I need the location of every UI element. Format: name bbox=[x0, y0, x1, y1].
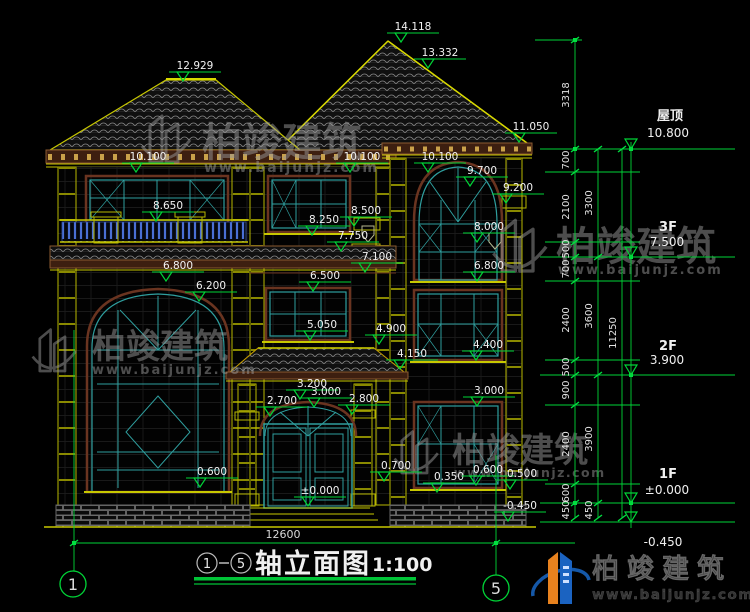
svg-text:1F: 1F bbox=[659, 467, 677, 482]
logo-url-text: www.baijunjz.com bbox=[592, 587, 750, 603]
svg-text:6.800: 6.800 bbox=[163, 260, 193, 272]
svg-text:4.150: 4.150 bbox=[397, 348, 427, 360]
svg-text:14.118: 14.118 bbox=[395, 21, 432, 33]
svg-text:3F: 3F bbox=[659, 220, 677, 235]
svg-text:4.400: 4.400 bbox=[473, 339, 503, 351]
svg-text:6.500: 6.500 bbox=[310, 270, 340, 282]
svg-text:0.600: 0.600 bbox=[197, 466, 227, 478]
svg-text:0.500: 0.500 bbox=[507, 468, 537, 480]
svg-text:450: 450 bbox=[584, 500, 595, 519]
svg-text:3.900: 3.900 bbox=[650, 353, 684, 367]
svg-text:11.050: 11.050 bbox=[513, 121, 550, 133]
svg-text:5.050: 5.050 bbox=[307, 319, 337, 331]
svg-text:www.baijunjz.com: www.baijunjz.com bbox=[92, 363, 257, 378]
svg-text:5: 5 bbox=[491, 579, 501, 598]
svg-text:12.929: 12.929 bbox=[177, 60, 214, 72]
axis-bubble-5: 5 bbox=[483, 575, 509, 601]
svg-text:8.000: 8.000 bbox=[474, 221, 504, 233]
level-roof: 屋顶 10.800 bbox=[625, 109, 689, 149]
svg-text:2F: 2F bbox=[659, 339, 677, 354]
width-dimension: 12600 bbox=[266, 528, 301, 541]
svg-text:600: 600 bbox=[561, 483, 572, 502]
svg-text:8.250: 8.250 bbox=[309, 214, 339, 226]
svg-text:6.800: 6.800 bbox=[474, 260, 504, 272]
svg-text:10.100: 10.100 bbox=[130, 151, 167, 163]
svg-text:屋顶: 屋顶 bbox=[657, 109, 683, 124]
svg-text:11250: 11250 bbox=[608, 317, 619, 349]
logo-brand-text: 柏竣建筑 bbox=[592, 553, 732, 585]
svg-text:900: 900 bbox=[561, 380, 572, 399]
svg-text:2.700: 2.700 bbox=[267, 395, 297, 407]
svg-text:4.900: 4.900 bbox=[376, 323, 406, 335]
axis-bubble-1: 1 bbox=[60, 571, 86, 597]
svg-text:9.700: 9.700 bbox=[467, 165, 497, 177]
svg-text:10.100: 10.100 bbox=[422, 151, 459, 163]
svg-text:www.baijunjz.com: www.baijunjz.com bbox=[558, 263, 723, 278]
logo-building-orange-icon bbox=[548, 552, 558, 604]
svg-text:6.200: 6.200 bbox=[196, 280, 226, 292]
svg-text:7.100: 7.100 bbox=[362, 251, 392, 263]
svg-text:2.800: 2.800 bbox=[349, 393, 379, 405]
svg-text:13.332: 13.332 bbox=[422, 47, 459, 59]
svg-text:7.500: 7.500 bbox=[650, 235, 684, 249]
brand-logo: 柏竣建筑 www.baijunjz.com bbox=[533, 552, 750, 604]
svg-text:柏竣建筑: 柏竣建筑 bbox=[92, 327, 228, 367]
svg-text:±0.000: ±0.000 bbox=[301, 485, 340, 497]
title-scale: 1:100 bbox=[372, 554, 432, 576]
watermark-right: 柏竣建筑 www.baijunjz.com bbox=[493, 220, 722, 278]
svg-text:3300: 3300 bbox=[584, 190, 595, 215]
svg-text:3318: 3318 bbox=[561, 82, 572, 107]
svg-text:9.200: 9.200 bbox=[503, 182, 533, 194]
svg-text:0.700: 0.700 bbox=[381, 460, 411, 472]
svg-text:8.650: 8.650 bbox=[153, 200, 183, 212]
svg-text:700: 700 bbox=[561, 150, 572, 169]
svg-text:3.000: 3.000 bbox=[311, 386, 341, 398]
svg-text:5: 5 bbox=[237, 557, 245, 572]
svg-text:500: 500 bbox=[561, 357, 572, 376]
svg-text:10.800: 10.800 bbox=[647, 126, 689, 140]
level-ground: -0.450 bbox=[625, 512, 682, 549]
dimension-chain-inner: 3318 700 2100 500 700 2400 500 900 2400 … bbox=[561, 82, 572, 519]
svg-text:±0.000: ±0.000 bbox=[645, 483, 689, 497]
logo-building-blue-icon bbox=[560, 552, 572, 604]
svg-text:2400: 2400 bbox=[561, 307, 572, 332]
svg-text:3600: 3600 bbox=[584, 303, 595, 328]
svg-text:2100: 2100 bbox=[561, 194, 572, 219]
svg-text:2400: 2400 bbox=[561, 431, 572, 456]
svg-text:-0.450: -0.450 bbox=[503, 500, 537, 512]
svg-text:450: 450 bbox=[561, 500, 572, 519]
svg-text:1: 1 bbox=[68, 575, 78, 594]
svg-text:700: 700 bbox=[561, 259, 572, 278]
svg-text:7.750: 7.750 bbox=[338, 230, 368, 242]
level-1f: 1F ±0.000 bbox=[625, 467, 689, 503]
elevation-drawing: 柏竣建筑 www.baijunjz.com 柏竣建筑 www.baijunjz.… bbox=[0, 0, 750, 612]
svg-text:-0.450: -0.450 bbox=[644, 535, 683, 549]
title-text: 轴立面图 bbox=[255, 548, 371, 580]
svg-text:0.350: 0.350 bbox=[434, 471, 464, 483]
svg-text:500: 500 bbox=[561, 239, 572, 258]
level-2f: 2F 3.900 bbox=[625, 339, 684, 375]
svg-text:8.500: 8.500 bbox=[351, 205, 381, 217]
svg-text:10.100: 10.100 bbox=[344, 151, 381, 163]
dimension-chain-outer: 11250 bbox=[608, 317, 619, 349]
svg-text:3900: 3900 bbox=[584, 426, 595, 451]
svg-text:0.600: 0.600 bbox=[473, 464, 503, 476]
svg-text:1: 1 bbox=[203, 557, 211, 572]
svg-text:3.000: 3.000 bbox=[474, 385, 504, 397]
drawing-title: 1 5 轴立面图 1:100 bbox=[194, 548, 432, 584]
